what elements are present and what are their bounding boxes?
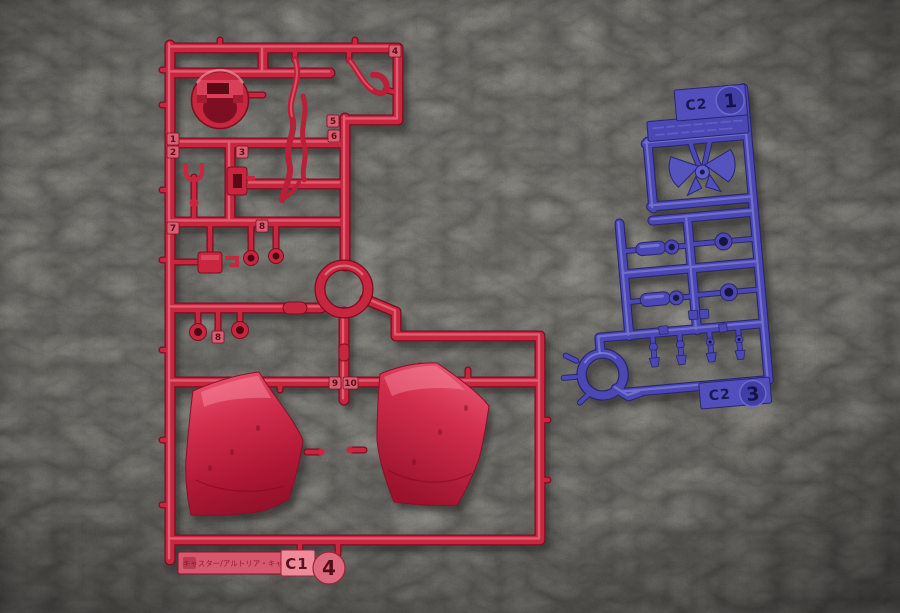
photo-of-model-kit-runners: 1 2 3 4 5 6 7 8 bbox=[0, 0, 900, 613]
runner-code-text: C2 bbox=[685, 96, 708, 114]
svg-text:4: 4 bbox=[392, 47, 398, 57]
runner-number-text: 1 bbox=[723, 90, 738, 113]
runner-code-text: C1 bbox=[285, 555, 308, 573]
part-number-tag: 3 bbox=[236, 146, 248, 158]
blue-runner-label-top: C2 1 bbox=[674, 84, 747, 121]
svg-text:2: 2 bbox=[170, 148, 176, 158]
part-number-tag: 7 bbox=[167, 222, 179, 234]
part-number-tag: 8 bbox=[256, 220, 268, 232]
part-number-tag: 10 bbox=[343, 377, 358, 389]
runner-number-text: 4 bbox=[322, 556, 336, 580]
part-number-tag: 5 bbox=[327, 115, 339, 127]
part-number-tag: 4 bbox=[389, 45, 401, 57]
svg-text:10: 10 bbox=[344, 379, 357, 389]
svg-text:7: 7 bbox=[170, 224, 176, 234]
runner-code-text: C2 bbox=[708, 386, 731, 404]
part-number-tag: 6 bbox=[328, 130, 340, 142]
svg-text:1: 1 bbox=[170, 135, 176, 145]
svg-text:5: 5 bbox=[330, 117, 336, 127]
gate-knob bbox=[347, 447, 354, 454]
gate-knob bbox=[318, 449, 325, 456]
inline-nub-part bbox=[339, 344, 349, 361]
svg-text:6: 6 bbox=[331, 132, 337, 142]
part-number-tag: 1 bbox=[167, 133, 179, 145]
inline-capsule-part bbox=[283, 302, 307, 314]
part-number-tag: 8 bbox=[212, 331, 224, 343]
runner-number-text: 3 bbox=[745, 383, 760, 406]
part-number-tag: 9 bbox=[329, 377, 341, 389]
svg-text:8: 8 bbox=[259, 222, 265, 232]
svg-text:9: 9 bbox=[332, 379, 338, 389]
svg-text:3: 3 bbox=[239, 148, 245, 158]
part-number-tag: 2 bbox=[167, 146, 179, 158]
hood-part bbox=[192, 70, 249, 128]
svg-text:8: 8 bbox=[215, 333, 221, 343]
